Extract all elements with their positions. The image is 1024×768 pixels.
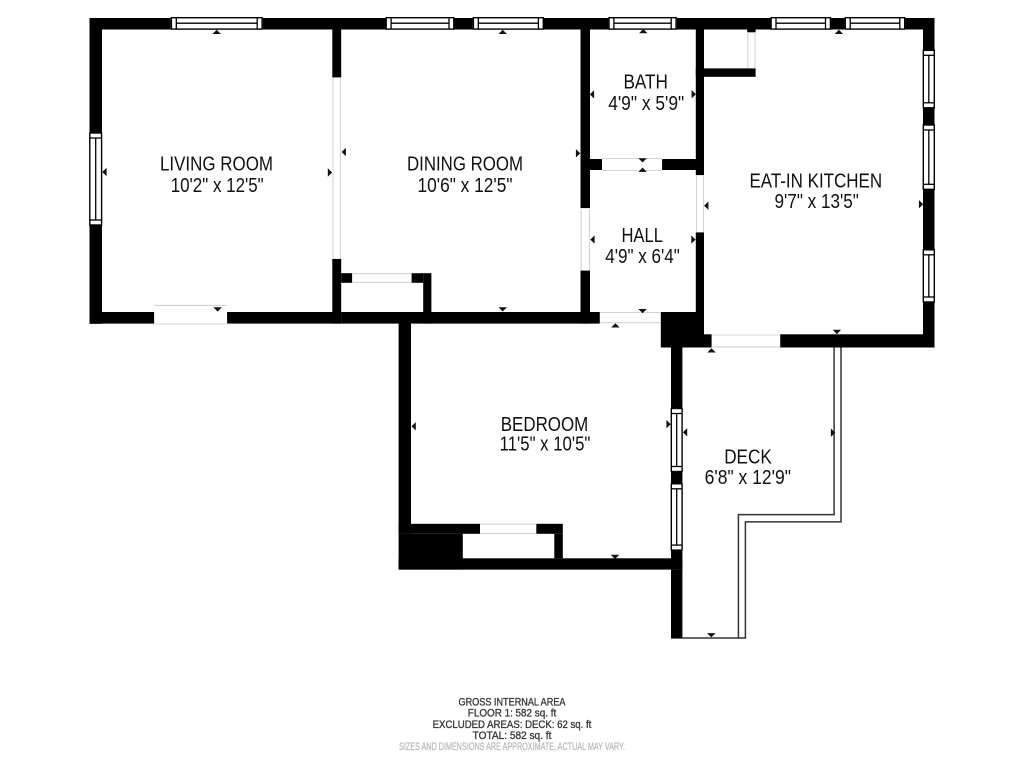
svg-text:4'9" x 5'9": 4'9" x 5'9" — [608, 93, 684, 115]
svg-text:9'7" x 13'5": 9'7" x 13'5" — [775, 191, 859, 213]
svg-text:4'9" x 6'4": 4'9" x 6'4" — [605, 246, 680, 268]
svg-text:DINING ROOM: DINING ROOM — [407, 154, 523, 176]
svg-text:11'5" x 10'5": 11'5" x 10'5" — [500, 434, 591, 456]
svg-text:FLOOR 1: 582 sq. ft: FLOOR 1: 582 sq. ft — [468, 708, 556, 720]
svg-text:10'2" x 12'5": 10'2" x 12'5" — [171, 175, 264, 197]
svg-text:BATH: BATH — [623, 72, 668, 94]
svg-text:EAT-IN KITCHEN: EAT-IN KITCHEN — [749, 171, 882, 193]
svg-text:GROSS INTERNAL AREA: GROSS INTERNAL AREA — [459, 696, 567, 708]
svg-text:6'8" x 12'9": 6'8" x 12'9" — [705, 467, 791, 489]
svg-text:10'6" x 12'5": 10'6" x 12'5" — [418, 175, 513, 197]
svg-text:HALL: HALL — [621, 225, 663, 247]
svg-text:DECK: DECK — [724, 447, 772, 469]
svg-text:LIVING ROOM: LIVING ROOM — [160, 154, 273, 176]
svg-text:SIZES AND DIMENSIONS ARE APPRO: SIZES AND DIMENSIONS ARE APPROXIMATE, AC… — [399, 741, 625, 753]
